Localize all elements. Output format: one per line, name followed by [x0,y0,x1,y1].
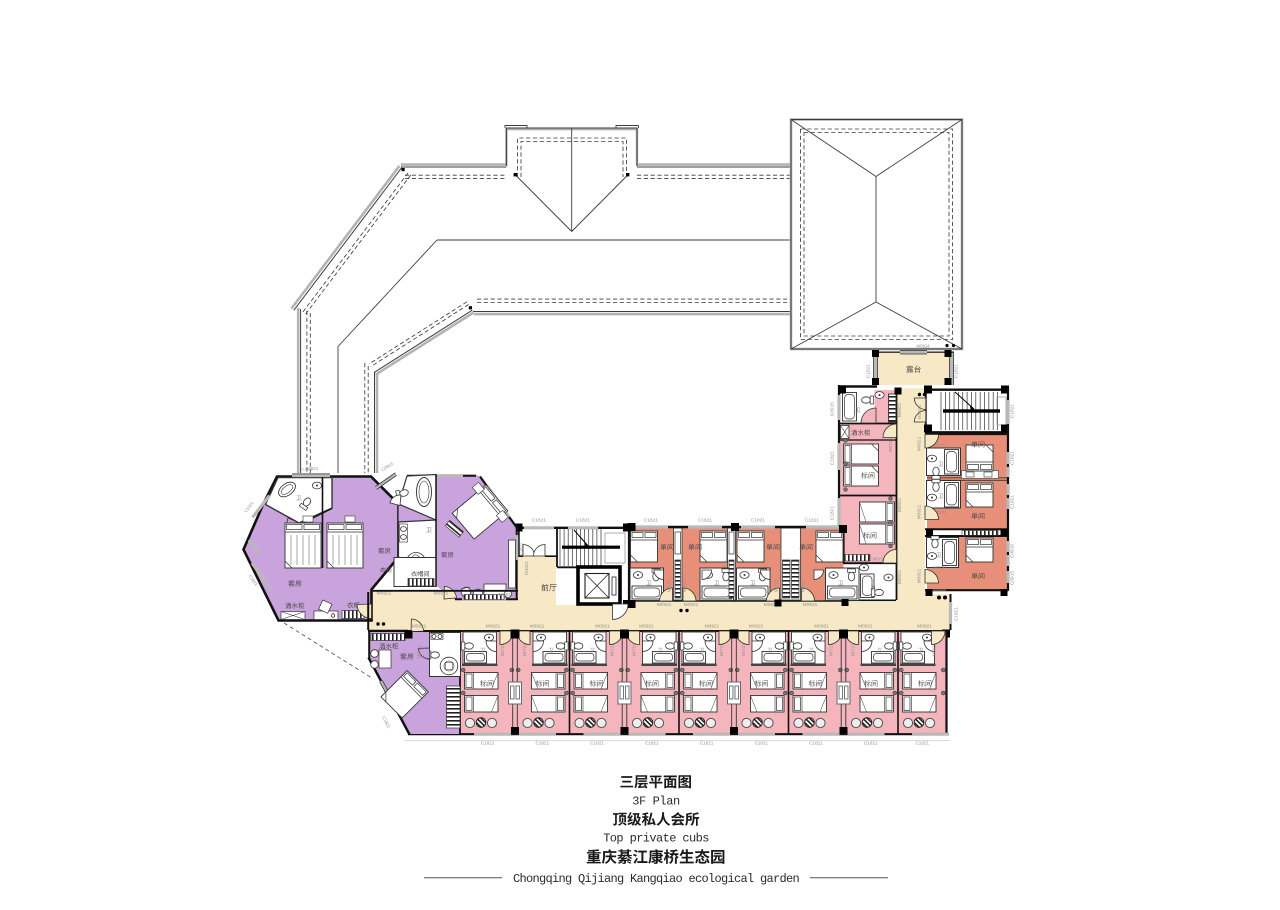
svg-text:C1821: C1821 [645,741,659,746]
svg-text:3F Plan: 3F Plan [632,795,680,809]
svg-text:C1821: C1821 [481,741,495,746]
svg-text:C1821: C1821 [535,741,549,746]
svg-text:M0921: M0921 [657,602,672,608]
svg-text:C0915: C0915 [1010,571,1016,585]
svg-text:M0721: M0721 [500,643,505,656]
svg-text:M0921: M0921 [486,624,501,630]
svg-text:M0921: M0921 [530,624,545,630]
svg-text:M0721: M0721 [829,643,834,656]
svg-text:M0721: M0721 [632,643,637,656]
svg-text:M0721: M0721 [682,579,687,592]
svg-text:C0915: C0915 [830,402,836,416]
svg-text:C1821: C1821 [1010,451,1016,465]
svg-text:C1821: C1821 [700,741,714,746]
svg-text:M0721: M0721 [741,643,746,656]
svg-text:C1821: C1821 [866,364,872,378]
svg-text:M0921: M0921 [917,436,923,451]
svg-text:M0921: M0921 [749,624,764,630]
svg-text:C1821: C1821 [864,741,878,746]
svg-text:M0921: M0921 [917,568,923,583]
svg-text:M0721: M0721 [417,645,422,658]
svg-text:M0721: M0721 [933,565,947,570]
svg-text:M0921: M0921 [897,569,903,584]
svg-text:M0921: M0921 [705,624,720,630]
svg-text:M0721: M0721 [851,643,856,656]
svg-text:C1821: C1821 [954,364,960,378]
svg-text:M0921: M0921 [917,504,923,519]
svg-text:C1821: C1821 [805,518,819,524]
svg-text:M0721: M0721 [610,643,615,656]
svg-text:C1821: C1821 [306,466,319,471]
svg-text:C1821: C1821 [915,741,929,746]
svg-text:C1821: C1821 [954,607,960,621]
svg-text:M0921: M0921 [858,624,873,630]
svg-text:C1821: C1821 [1010,495,1016,509]
svg-text:M1521: M1521 [917,404,923,419]
svg-text:M0921: M0921 [917,624,932,630]
svg-text:M0921: M0921 [412,624,427,630]
svg-text:C1821: C1821 [809,741,823,746]
svg-text:C1821: C1821 [754,741,768,746]
svg-text:W0914: W0914 [916,344,930,349]
svg-text:C1821: C1821 [590,741,604,746]
svg-text:M0721: M0721 [774,579,779,592]
svg-text:C1821: C1821 [1010,404,1016,418]
svg-text:C1821: C1821 [751,518,765,524]
svg-text:M0921: M0921 [803,602,818,608]
svg-text:M0921: M0921 [499,592,514,598]
svg-text:C1821: C1821 [698,518,712,524]
svg-text:C1821: C1821 [576,518,590,524]
svg-text:M0921: M0921 [897,497,903,512]
svg-text:C1821: C1821 [532,518,546,524]
svg-text:M0721: M0721 [667,579,672,592]
svg-text:M0721: M0721 [719,643,724,656]
svg-text:M0921: M0921 [684,602,699,608]
svg-text:Chongqing Qijiang Kangqiao eco: Chongqing Qijiang Kangqiao ecological ga… [513,872,800,886]
svg-text:M0921: M0921 [595,624,610,630]
svg-text:M0721: M0721 [522,643,527,656]
svg-text:M0921: M0921 [814,624,829,630]
svg-text:M0721: M0721 [801,579,806,592]
svg-text:C0915: C0915 [1010,544,1016,558]
svg-text:C1821: C1821 [830,506,836,520]
svg-text:C1821: C1821 [519,542,524,555]
svg-text:Top private cubs: Top private cubs [603,832,709,846]
svg-text:M0721: M0721 [932,643,937,656]
svg-text:C1821: C1821 [644,518,658,524]
svg-text:M0921: M0921 [897,402,903,417]
svg-text:M0721: M0721 [888,437,894,452]
svg-text:M1521: M1521 [524,561,529,575]
svg-text:M0921: M0921 [639,624,654,630]
svg-text:C1821: C1821 [830,451,836,465]
